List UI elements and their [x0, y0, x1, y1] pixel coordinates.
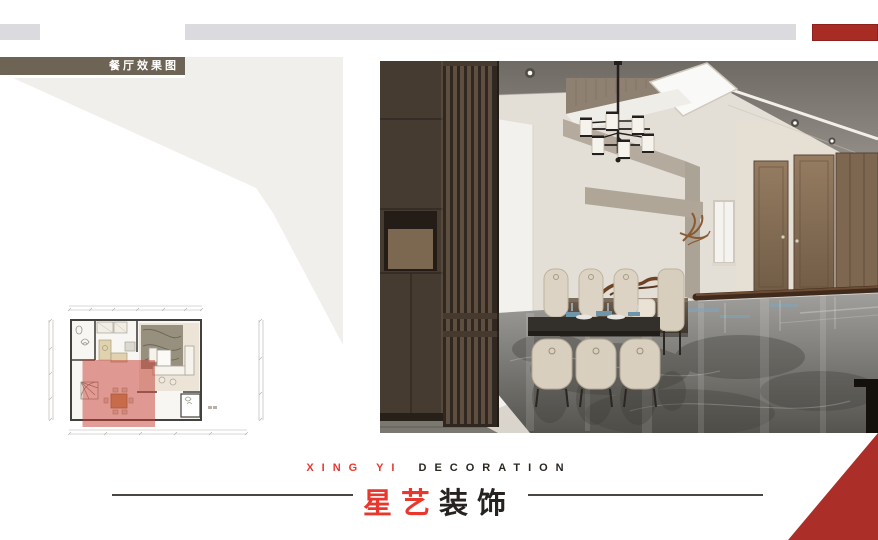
wood-cabinet: [380, 61, 443, 421]
plan-dining-highlight: [83, 360, 156, 427]
top-bar-left: [0, 24, 40, 40]
brand-english-red: XING YI: [306, 462, 402, 474]
hallway-window: [712, 201, 736, 266]
section-tag: 餐厅效果图: [0, 57, 185, 75]
brand-cn-dark: 装饰: [439, 488, 515, 520]
brand-rule-right: [528, 494, 763, 496]
brand-cn-red: 星艺: [363, 488, 439, 520]
top-bar-right: [185, 24, 796, 40]
presentation-slide: 餐厅效果图: [0, 0, 878, 540]
section-tag-label: 餐厅效果图: [109, 59, 179, 72]
dining-table: [528, 317, 660, 331]
brand-english-dark: DECORATION: [419, 462, 572, 474]
brand-rule-left: [112, 494, 353, 496]
plan-label-mark: [208, 406, 217, 409]
floor-plan: [45, 298, 275, 448]
dining-room-render: [380, 61, 878, 433]
wood-slat-screen: [443, 61, 499, 427]
brand-chinese-line: 星艺装饰: [0, 480, 878, 522]
top-bar-accent: [812, 24, 878, 41]
plan-terrace: [181, 394, 200, 417]
brand-english-line: XING YIDECORATION: [0, 462, 878, 474]
front-chairs: [532, 339, 660, 389]
